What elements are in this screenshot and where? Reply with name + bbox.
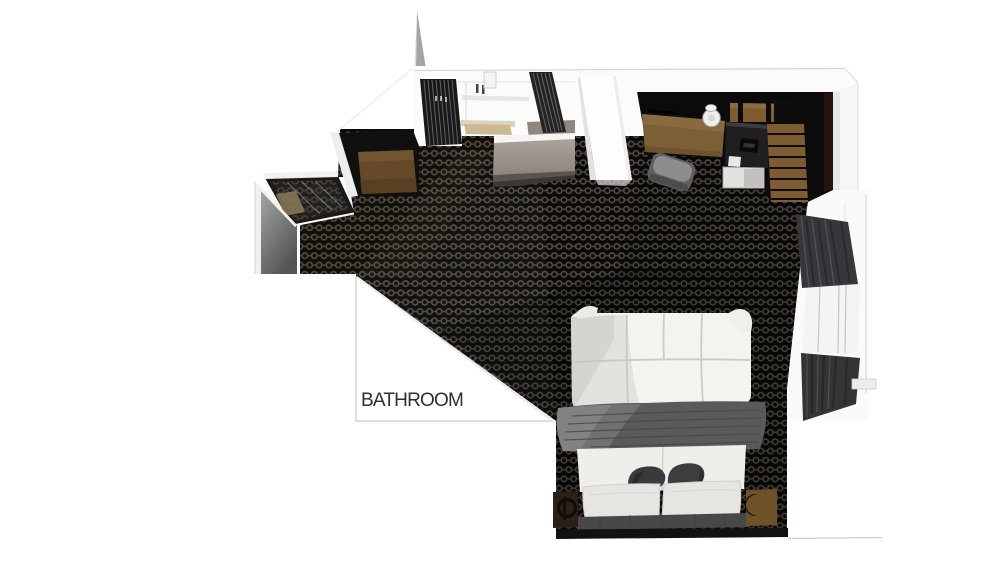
svg-text:BATHROOM: BATHROOM bbox=[361, 390, 463, 411]
